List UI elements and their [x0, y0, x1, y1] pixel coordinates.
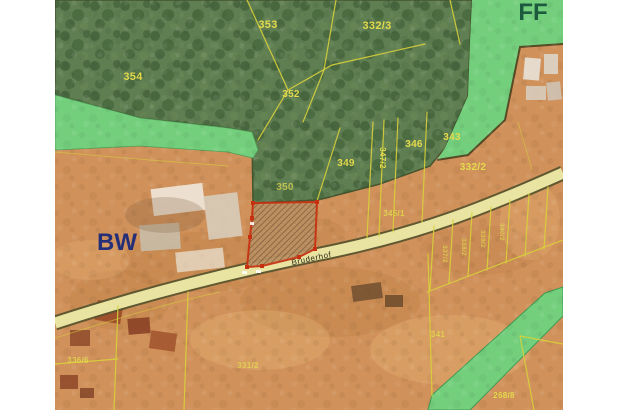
parcel-label-346: 346 — [405, 139, 423, 150]
parcel-label-354: 354 — [123, 71, 143, 83]
parcel-label-strip-1: 337/2 — [441, 245, 448, 263]
cadastral-map-svg[interactable]: 353 354 352 332/3 349 347/2 346 343 350 … — [0, 0, 620, 410]
parcel-label-268-8: 268/8 — [493, 391, 515, 400]
parcel-label-352: 352 — [282, 89, 300, 100]
parcel-label-347-2: 347/2 — [378, 147, 387, 169]
left-margin — [0, 0, 55, 410]
parcel-label-332-2: 332/2 — [460, 162, 487, 173]
parcel-label-343: 343 — [443, 132, 461, 143]
parcel-label-strip-3: 339/2 — [479, 230, 486, 248]
parcel-label-353: 353 — [258, 19, 277, 31]
right-margin — [563, 0, 620, 410]
parcel-label-strip-4: 340/2 — [498, 223, 505, 241]
parcel-label-331-2: 331/2 — [237, 361, 259, 370]
parcel-label-341: 341 — [431, 330, 445, 339]
parcel-label-332-3: 332/3 — [362, 20, 391, 32]
region-label-ff: FF — [518, 0, 547, 26]
parcel-label-336-6: 336/6 — [67, 356, 89, 365]
parcel-label-350: 350 — [276, 182, 294, 193]
parcel-label-345-1: 345/1 — [383, 209, 405, 218]
parcel-label-349: 349 — [337, 158, 355, 169]
region-label-bw: BW — [97, 229, 137, 256]
map-viewport[interactable]: 353 354 352 332/3 349 347/2 346 343 350 … — [0, 0, 620, 410]
parcel-label-strip-2: 338/2 — [460, 238, 467, 256]
